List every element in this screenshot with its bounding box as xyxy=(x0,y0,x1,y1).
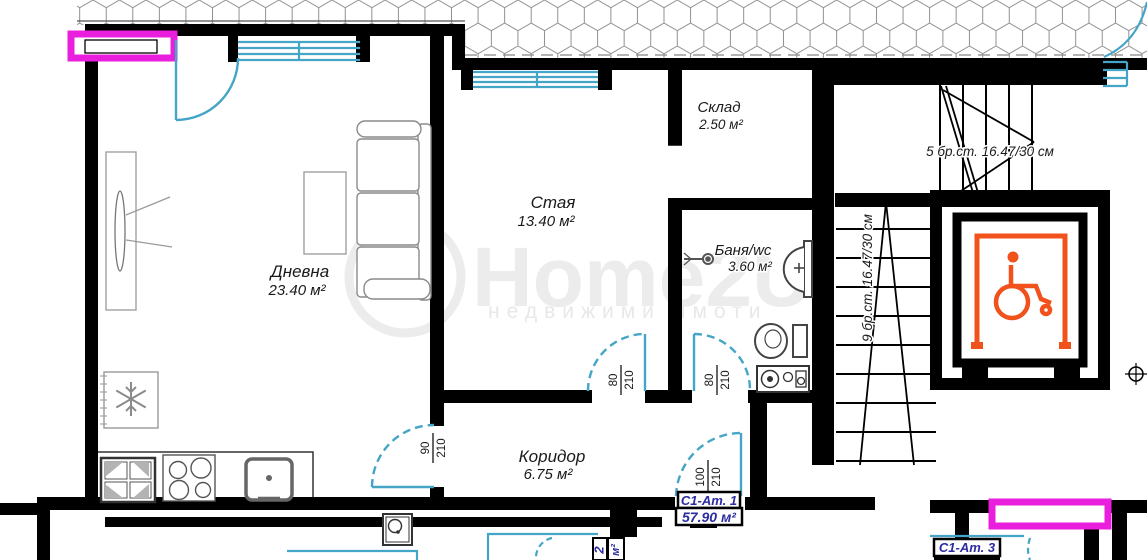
unit2-sqm: м² xyxy=(610,544,622,556)
watermark-tagline: недвижими имоти xyxy=(488,300,767,323)
window-jamb-room-left xyxy=(461,68,473,90)
drain-symbol xyxy=(1125,363,1147,385)
sofa xyxy=(357,121,431,300)
door-80a-num: 80 xyxy=(608,374,620,387)
wall-bath-top xyxy=(668,198,828,210)
wall-door-jamb xyxy=(430,487,444,499)
wall-corridor-1 xyxy=(444,390,592,403)
kitchen-sink xyxy=(246,459,292,500)
window-jamb-room-right xyxy=(598,68,612,90)
door-80a-den: 210 xyxy=(624,370,636,389)
unit1-label: С1-Ат. 1 57.90 м² xyxy=(676,492,742,525)
door-80b-num: 80 xyxy=(704,374,716,387)
elevator-frame-foot-left xyxy=(971,342,983,349)
bath-name: Баня/wc xyxy=(715,242,772,259)
wall-stairwell-top xyxy=(830,68,1107,85)
wall-corridor-east xyxy=(750,397,767,497)
elevator xyxy=(936,196,1104,384)
wall-lower-unit-1 xyxy=(105,517,385,527)
wall-left xyxy=(85,24,98,510)
toilet-icon xyxy=(755,324,807,358)
unit1-name: С1-Ат. 1 xyxy=(681,493,737,508)
floor-plan-canvas: Home2U недвижими имоти xyxy=(0,0,1147,560)
living-room-area: 23.40 м² xyxy=(268,282,327,299)
door-100-den: 210 xyxy=(711,467,723,486)
window-room-top xyxy=(473,72,598,87)
washing-machine-lower-icon xyxy=(383,514,412,545)
door-80b-den: 210 xyxy=(720,370,732,389)
unit2-digit: 2 xyxy=(591,546,606,555)
wall-left-edge xyxy=(0,503,40,515)
stair-flight-side xyxy=(836,200,936,465)
room-area: 13.40 м² xyxy=(518,213,576,230)
door-90-den: 210 xyxy=(436,438,448,457)
elevator-jamb-right xyxy=(1054,363,1080,383)
door-label-100-210: 100 210 xyxy=(695,460,723,494)
door-living-90 xyxy=(372,425,434,487)
wall-stairwell-left xyxy=(812,70,834,465)
floor-plan: Home2U недвижими имоти xyxy=(0,0,1147,560)
elevator-frame-foot-right xyxy=(1059,342,1071,349)
door-label-80-210-room: 80 210 xyxy=(608,365,636,395)
wall-bath-left xyxy=(668,198,682,403)
unit3-label: С1-Ат. 3 xyxy=(934,539,1000,560)
kitchen-cabinet xyxy=(101,458,155,502)
elevator-jamb-left xyxy=(962,363,988,383)
coffee-table xyxy=(304,172,346,254)
fridge xyxy=(100,372,158,428)
unit2-label: 2 м² xyxy=(591,538,624,560)
window-jamb-living-left xyxy=(228,36,238,62)
wall-bottom-right xyxy=(745,497,875,510)
window-living-top xyxy=(238,42,360,60)
living-room-name: Дневна xyxy=(269,262,329,281)
stove xyxy=(163,455,215,501)
window-living-magenta xyxy=(71,34,174,58)
unit3-name: С1-Ат. 3 xyxy=(939,540,996,555)
storage-name: Склад xyxy=(697,99,740,116)
wall-notch-1 xyxy=(610,510,637,537)
door-90-num: 90 xyxy=(420,442,432,455)
room-name: Стая xyxy=(531,193,576,212)
door-label-90-210: 90 210 xyxy=(420,433,448,463)
wall-storage-left xyxy=(668,70,682,145)
bath-area: 3.60 м² xyxy=(728,259,772,274)
corridor-name: Коридор xyxy=(519,447,586,466)
wheelchair-icon xyxy=(996,252,1051,319)
kitchen xyxy=(98,372,313,502)
washing-machine-icon xyxy=(757,366,809,392)
stair-side-label: 9 бр.ст. 16.47/30 см xyxy=(860,214,875,342)
door-size-labels: 90 210 80 210 80 210 100 210 xyxy=(420,365,732,494)
wall-living-room-divider xyxy=(430,28,444,426)
window-unit3-magenta xyxy=(992,502,1108,526)
wall-unit3-down-2 xyxy=(1112,513,1127,560)
tv-cabinet xyxy=(106,152,172,310)
door-100-num: 100 xyxy=(695,467,707,486)
stair-top-label: 5 бр.ст. 16.47/30 см xyxy=(926,144,1054,159)
unit1-area: 57.90 м² xyxy=(682,509,736,525)
corridor-area: 6.75 м² xyxy=(524,466,574,483)
storage-area: 2.50 м² xyxy=(698,117,743,132)
door-label-80-210-bath: 80 210 xyxy=(704,365,732,395)
